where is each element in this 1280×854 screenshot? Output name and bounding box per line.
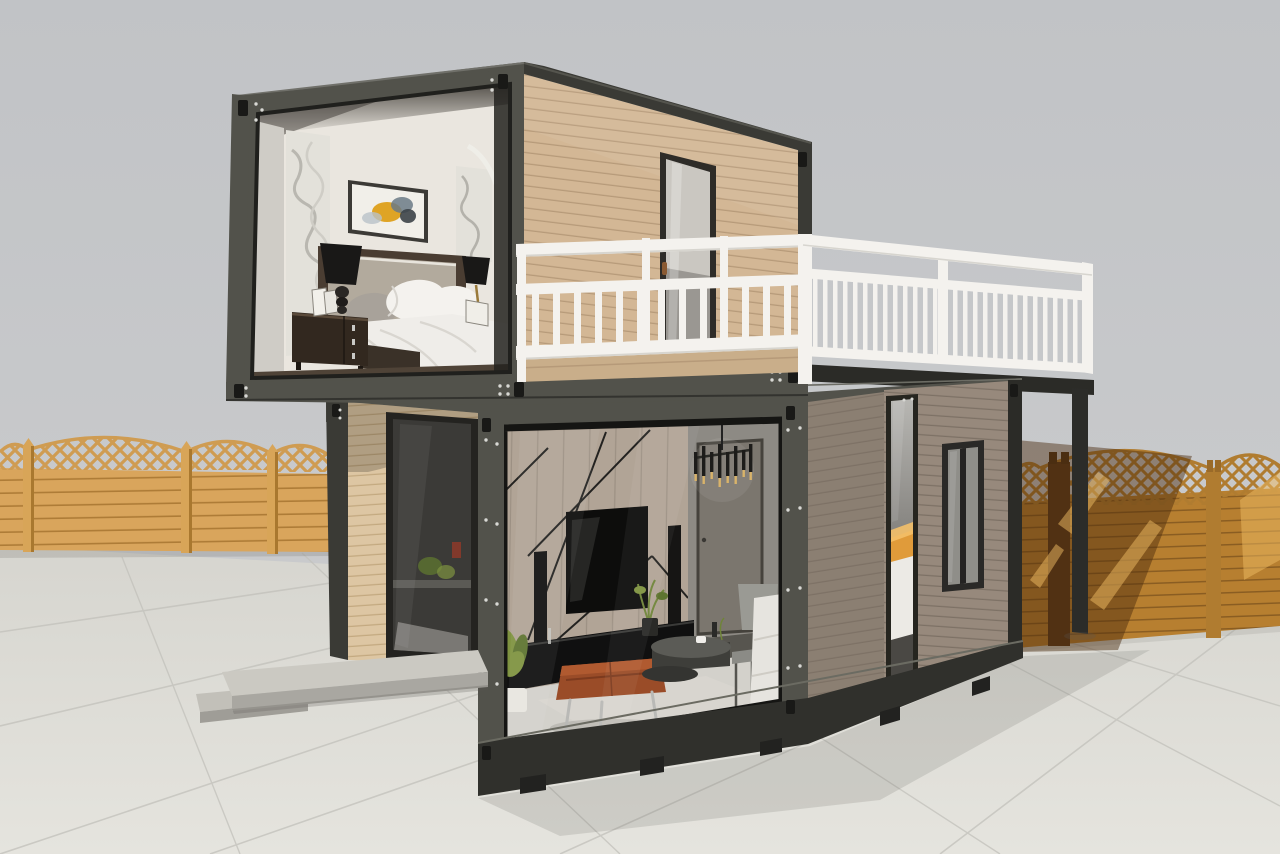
living-room-interior (496, 420, 782, 748)
railing-side-end-post (1082, 262, 1093, 374)
fence-left (0, 437, 330, 554)
balcony-post (1072, 388, 1088, 634)
railing-post-mid-2 (720, 236, 728, 346)
module-left (326, 398, 478, 664)
sofa (750, 594, 782, 712)
module-right-corner-trim (1008, 380, 1022, 646)
small-window (942, 440, 984, 592)
cut-reveal-right (494, 82, 510, 374)
photo-frame-right (466, 300, 488, 326)
glass-box-left-post (478, 410, 504, 772)
railing-post-left (517, 244, 526, 382)
render-stage (0, 0, 1280, 854)
module-right-front-siding (808, 392, 884, 716)
post-shadow (1064, 632, 1096, 640)
wall-art (348, 180, 428, 243)
carved-panel-right (456, 166, 492, 268)
bedroom-interior (248, 82, 510, 380)
railing-post-mid (642, 238, 650, 350)
bottle (712, 622, 717, 637)
photo-frames (312, 288, 338, 316)
door-handle (662, 262, 667, 275)
fence-right (1016, 440, 1280, 652)
fence-left-boards (0, 468, 330, 552)
cup (696, 636, 706, 643)
railing-side-post (938, 250, 948, 358)
scene-render (0, 0, 1280, 854)
glass-box-right-post (782, 398, 808, 722)
door-knob (702, 538, 706, 542)
